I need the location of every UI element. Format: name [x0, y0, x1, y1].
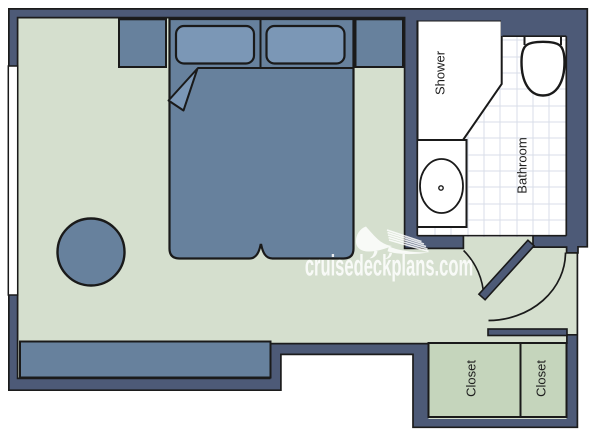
- svg-text:Shower: Shower: [433, 50, 448, 95]
- svg-text:Bathroom: Bathroom: [515, 137, 530, 193]
- svg-text:cruisedeckplans.com: cruisedeckplans.com: [305, 249, 473, 282]
- svg-text:Closet: Closet: [534, 360, 549, 397]
- svg-text:Closet: Closet: [464, 360, 479, 397]
